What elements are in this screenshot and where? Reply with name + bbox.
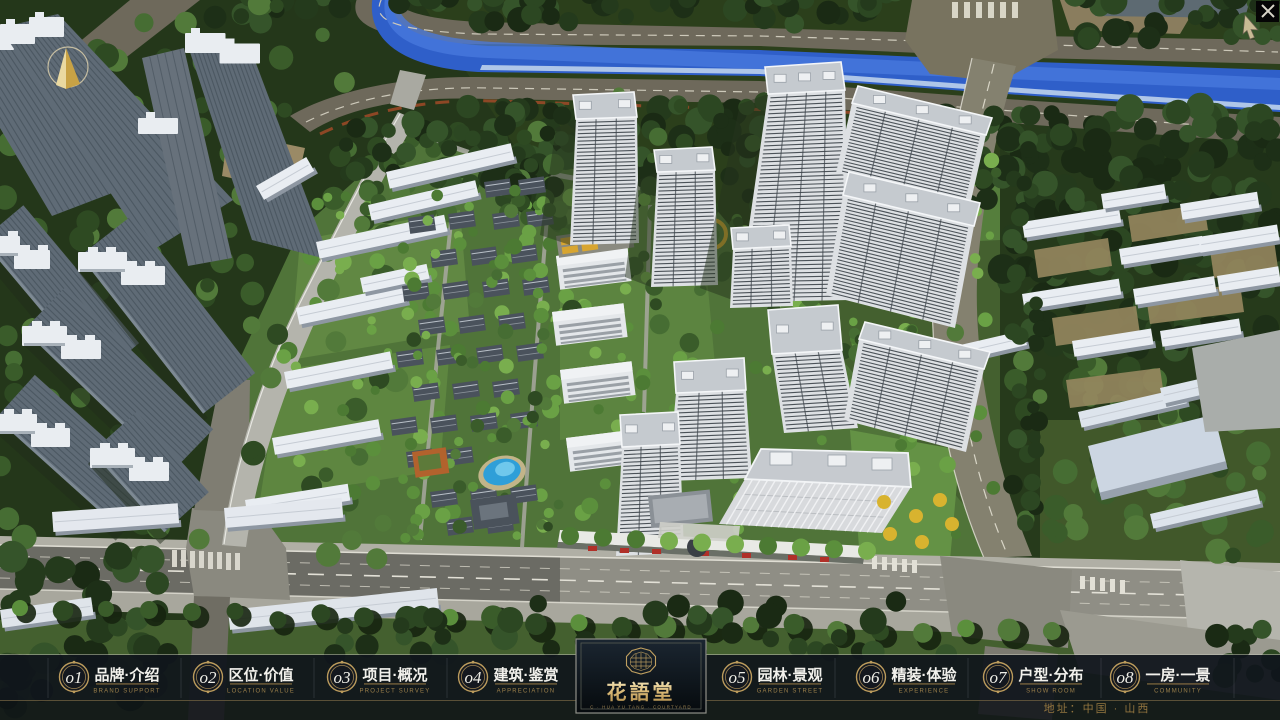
svg-text:GARDEN STREET: GARDEN STREET (757, 689, 824, 695)
svg-text:建筑·鉴赏: 建筑·鉴赏 (494, 666, 559, 684)
svg-text:区位·价值: 区位·价值 (229, 666, 294, 684)
svg-text:精装·体验: 精装·体验 (892, 666, 958, 684)
svg-text:o3: o3 (334, 668, 351, 687)
svg-text:SHOW ROOM: SHOW ROOM (1026, 689, 1076, 695)
svg-text:o5: o5 (729, 668, 746, 687)
svg-text:项目·概况: 项目·概况 (363, 666, 428, 684)
svg-text:地址：中国 · 山西: 地址：中国 · 山西 (1044, 701, 1151, 715)
svg-text:o1: o1 (66, 668, 83, 687)
svg-text:o7: o7 (990, 668, 1009, 687)
svg-text:o8: o8 (1117, 668, 1135, 687)
svg-text:PROJECT SURVEY: PROJECT SURVEY (360, 689, 431, 695)
svg-text:o4: o4 (465, 668, 483, 687)
svg-text:o2: o2 (200, 668, 218, 687)
svg-text:花語堂: 花語堂 (607, 680, 676, 704)
svg-text:品牌·介绍: 品牌·介绍 (95, 666, 160, 684)
svg-text:C · HUA YU TANG · COURTYARD: C · HUA YU TANG · COURTYARD (590, 705, 692, 710)
svg-text:一房·一景: 一房·一景 (1146, 666, 1211, 684)
svg-text:COMMUNITY: COMMUNITY (1154, 689, 1202, 695)
svg-text:BRAND SUPPORT: BRAND SUPPORT (93, 689, 160, 695)
svg-text:o6: o6 (863, 668, 881, 687)
svg-text:LOCATION VALUE: LOCATION VALUE (227, 689, 295, 695)
svg-text:园林·景观: 园林·景观 (758, 666, 823, 684)
svg-text:APPRECIATION: APPRECIATION (497, 689, 556, 695)
svg-text:户型·分布: 户型·分布 (1019, 666, 1084, 684)
svg-text:EXPERIENCE: EXPERIENCE (899, 689, 950, 695)
